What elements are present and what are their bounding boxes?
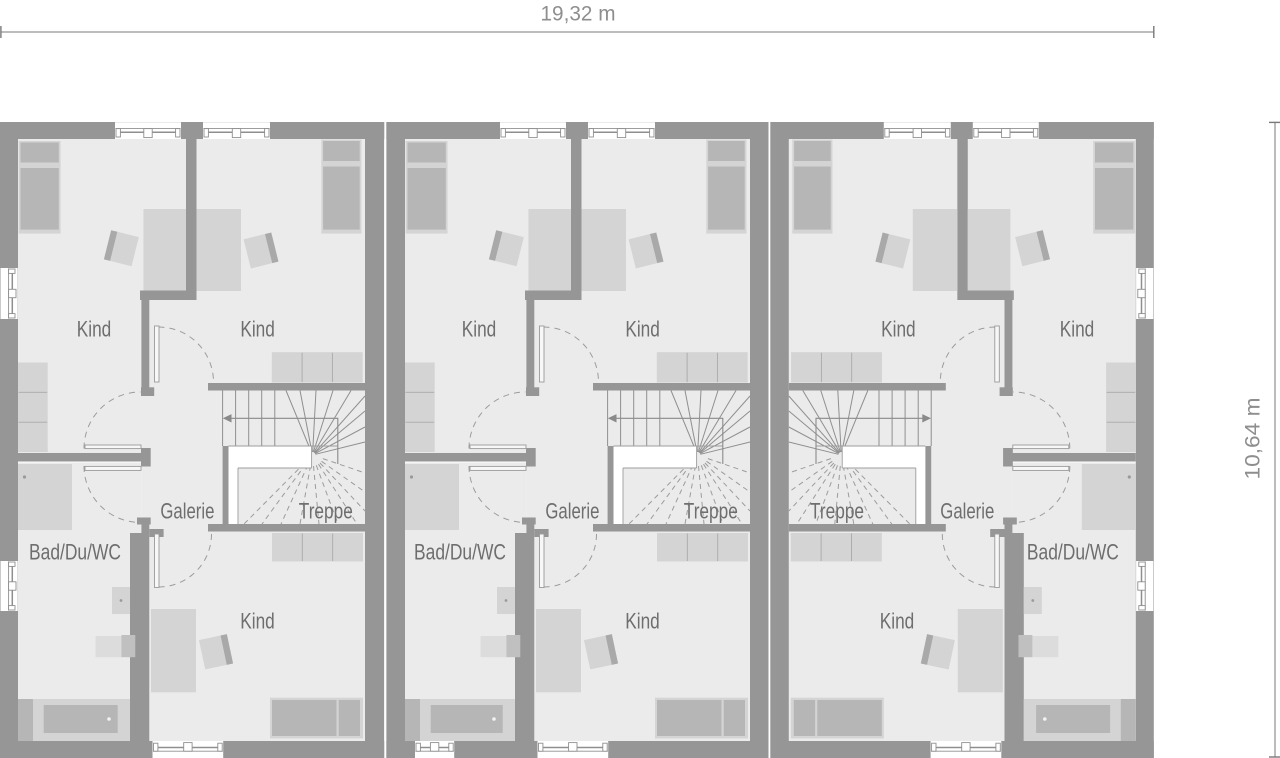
svg-text:Bad/Du/WC: Bad/Du/WC (1027, 540, 1119, 565)
svg-text:Kind: Kind (240, 609, 275, 634)
svg-text:Kind: Kind (880, 609, 915, 634)
svg-text:10,64 m: 10,64 m (1242, 398, 1265, 480)
svg-text:Treppe: Treppe (299, 498, 353, 523)
svg-text:Galerie: Galerie (160, 498, 214, 523)
svg-text:Kind: Kind (625, 609, 660, 634)
svg-text:Bad/Du/WC: Bad/Du/WC (414, 540, 506, 565)
svg-text:Galerie: Galerie (545, 498, 599, 523)
svg-text:Kind: Kind (240, 317, 275, 342)
svg-text:Kind: Kind (1060, 317, 1095, 342)
svg-text:Kind: Kind (462, 317, 497, 342)
svg-text:Kind: Kind (625, 317, 660, 342)
svg-text:Galerie: Galerie (940, 498, 994, 523)
svg-text:Bad/Du/WC: Bad/Du/WC (29, 540, 121, 565)
svg-text:Treppe: Treppe (810, 498, 864, 523)
svg-text:Kind: Kind (881, 317, 916, 342)
svg-text:Treppe: Treppe (684, 498, 738, 523)
svg-text:Kind: Kind (77, 317, 112, 342)
svg-text:19,32 m: 19,32 m (541, 3, 616, 26)
